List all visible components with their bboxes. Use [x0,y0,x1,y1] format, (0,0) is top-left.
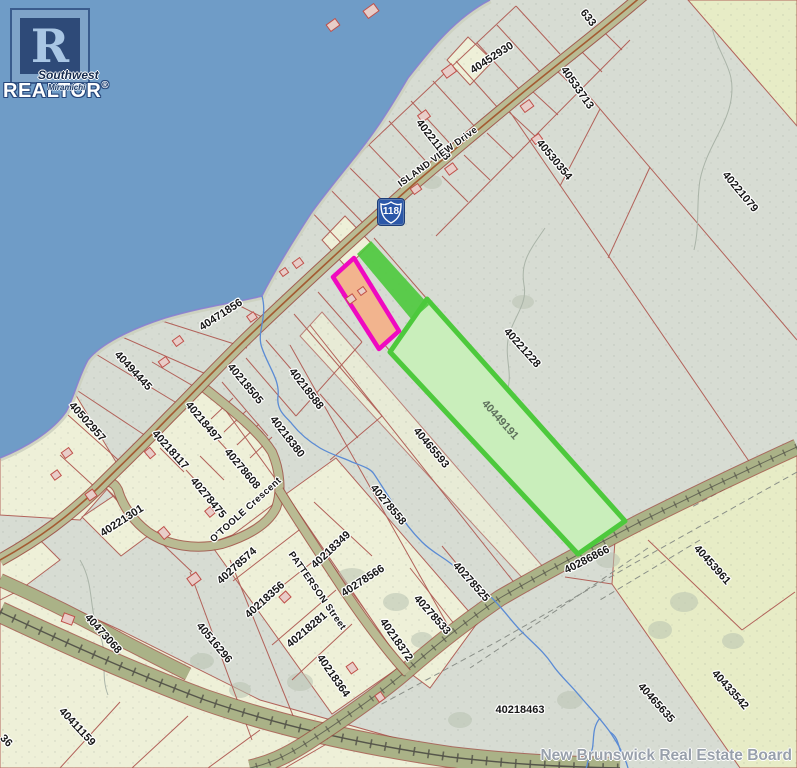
realtor-logo: R Southwest Miramichi REALTOR® [8,6,118,110]
registered-mark: ® [101,80,109,91]
route-number: 118 [378,206,404,217]
realtor-r-glyph: R [31,23,69,69]
logo-overlay-miramichi: Miramichi [48,83,85,92]
parcel-label-40218463: 40218463 [496,704,545,716]
route-118-shield: 118 [377,198,405,226]
board-watermark: New Brunswick Real Estate Board [540,747,792,765]
logo-overlay-southwest: Southwest [38,68,99,82]
gis-map-view[interactable]: 118 404529306334022117840533713405303544… [0,0,797,768]
realtor-r-icon: R [20,18,80,74]
